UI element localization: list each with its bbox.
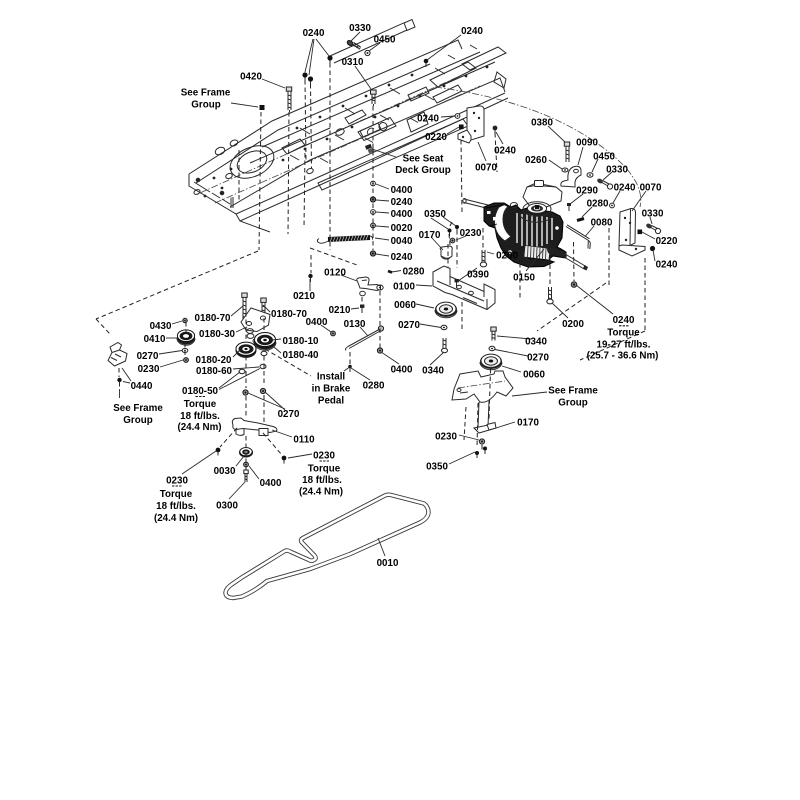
svg-text:0170: 0170 — [517, 418, 539, 429]
svg-text:0100: 0100 — [393, 282, 415, 293]
svg-text:0200: 0200 — [562, 319, 584, 330]
svg-text:(24.4 Nm): (24.4 Nm) — [177, 422, 221, 433]
svg-text:0400: 0400 — [391, 209, 413, 220]
svg-text:Torque: Torque — [160, 489, 193, 500]
svg-text:0300: 0300 — [216, 501, 238, 512]
svg-text:0310: 0310 — [342, 57, 364, 68]
svg-text:0240: 0240 — [613, 315, 635, 326]
svg-text:0200: 0200 — [496, 251, 518, 262]
svg-text:0070: 0070 — [640, 183, 662, 194]
svg-text:0330: 0330 — [349, 23, 371, 34]
svg-text:0430: 0430 — [150, 321, 172, 332]
svg-text:0030: 0030 — [214, 466, 236, 477]
svg-text:0450: 0450 — [593, 152, 615, 163]
svg-text:0070: 0070 — [475, 163, 497, 174]
svg-text:0240: 0240 — [461, 26, 483, 37]
svg-text:0340: 0340 — [525, 337, 547, 348]
svg-text:(24.4 Nm): (24.4 Nm) — [299, 487, 343, 498]
svg-text:0060: 0060 — [394, 300, 416, 311]
svg-text:in Brake: in Brake — [312, 384, 351, 395]
svg-text:0380: 0380 — [531, 118, 553, 129]
svg-text:0020: 0020 — [391, 223, 413, 234]
svg-text:0280: 0280 — [587, 199, 609, 210]
svg-text:0180-30: 0180-30 — [199, 329, 236, 340]
svg-text:0240: 0240 — [391, 252, 413, 263]
svg-text:0280: 0280 — [403, 267, 425, 278]
svg-text:Group: Group — [123, 415, 152, 426]
svg-text:0080: 0080 — [591, 218, 613, 229]
svg-text:0340: 0340 — [422, 366, 444, 377]
svg-text:See Frame: See Frame — [181, 88, 231, 99]
svg-text:0350: 0350 — [426, 462, 448, 473]
svg-text:Group: Group — [191, 100, 220, 111]
svg-text:See Frame: See Frame — [113, 403, 163, 414]
svg-text:0240: 0240 — [417, 114, 439, 125]
svg-text:Group: Group — [558, 398, 587, 409]
svg-text:0090: 0090 — [576, 138, 598, 149]
svg-text:0260: 0260 — [525, 155, 547, 166]
svg-text:0450: 0450 — [374, 35, 396, 46]
svg-text:0130: 0130 — [344, 319, 366, 330]
svg-text:0040: 0040 — [391, 236, 413, 247]
svg-text:18 ft/lbs.: 18 ft/lbs. — [302, 475, 342, 486]
svg-text:0180-70: 0180-70 — [271, 309, 308, 320]
svg-text:18 ft/lbs.: 18 ft/lbs. — [156, 501, 196, 512]
svg-text:0150: 0150 — [513, 273, 535, 284]
svg-text:0290: 0290 — [576, 186, 598, 197]
svg-text:Torque: Torque — [184, 399, 217, 410]
svg-text:0400: 0400 — [306, 317, 328, 328]
svg-text:See Seat: See Seat — [403, 154, 445, 165]
svg-text:0400: 0400 — [391, 365, 413, 376]
svg-text:0230: 0230 — [166, 476, 188, 487]
svg-text:0230: 0230 — [138, 364, 160, 375]
svg-text:0240: 0240 — [494, 146, 516, 157]
svg-text:0270: 0270 — [398, 320, 420, 331]
svg-text:0180-20: 0180-20 — [196, 355, 233, 366]
svg-text:0220: 0220 — [425, 132, 447, 143]
svg-text:0110: 0110 — [293, 435, 315, 446]
svg-text:0350: 0350 — [424, 209, 446, 220]
svg-text:0060: 0060 — [523, 370, 545, 381]
svg-text:Torque: Torque — [607, 328, 640, 339]
svg-text:19-27 ft/lbs.: 19-27 ft/lbs. — [597, 340, 651, 351]
svg-text:0180-40: 0180-40 — [283, 350, 320, 361]
svg-text:Torque: Torque — [308, 464, 341, 475]
svg-text:0220: 0220 — [656, 236, 678, 247]
svg-text:0390: 0390 — [467, 270, 489, 281]
svg-text:0180-60: 0180-60 — [196, 366, 233, 377]
svg-text:Deck Group: Deck Group — [395, 165, 451, 176]
svg-text:18 ft/lbs.: 18 ft/lbs. — [180, 411, 220, 422]
svg-text:0330: 0330 — [642, 209, 664, 220]
svg-text:0010: 0010 — [377, 558, 399, 569]
svg-text:0230: 0230 — [435, 432, 457, 443]
svg-text:0240: 0240 — [656, 260, 678, 271]
svg-text:Pedal: Pedal — [318, 396, 344, 407]
svg-text:0170: 0170 — [419, 230, 441, 241]
svg-text:0410: 0410 — [144, 334, 166, 345]
svg-text:0230: 0230 — [460, 228, 482, 239]
svg-text:0330: 0330 — [606, 165, 628, 176]
svg-text:(25.7 - 36.6 Nm): (25.7 - 36.6 Nm) — [587, 351, 659, 362]
svg-text:0240: 0240 — [614, 183, 636, 194]
svg-text:0230: 0230 — [313, 451, 335, 462]
svg-text:0210: 0210 — [293, 291, 315, 302]
svg-text:0240: 0240 — [303, 28, 325, 39]
svg-text:0400: 0400 — [391, 185, 413, 196]
svg-text:0210: 0210 — [329, 305, 351, 316]
svg-text:0180-10: 0180-10 — [283, 336, 320, 347]
svg-text:0270: 0270 — [278, 409, 300, 420]
svg-text:0120: 0120 — [324, 268, 346, 279]
svg-text:0280: 0280 — [363, 381, 385, 392]
svg-text:0180-50: 0180-50 — [182, 386, 219, 397]
svg-text:0270: 0270 — [527, 353, 549, 364]
svg-text:0400: 0400 — [260, 478, 282, 489]
svg-text:See Frame: See Frame — [548, 386, 598, 397]
svg-text:0440: 0440 — [131, 381, 153, 392]
svg-text:0420: 0420 — [240, 72, 262, 83]
svg-text:0240: 0240 — [391, 197, 413, 208]
svg-text:0180-70: 0180-70 — [195, 313, 232, 324]
svg-text:0270: 0270 — [137, 351, 159, 362]
svg-text:Install: Install — [317, 372, 346, 383]
svg-text:(24.4 Nm): (24.4 Nm) — [154, 513, 198, 524]
